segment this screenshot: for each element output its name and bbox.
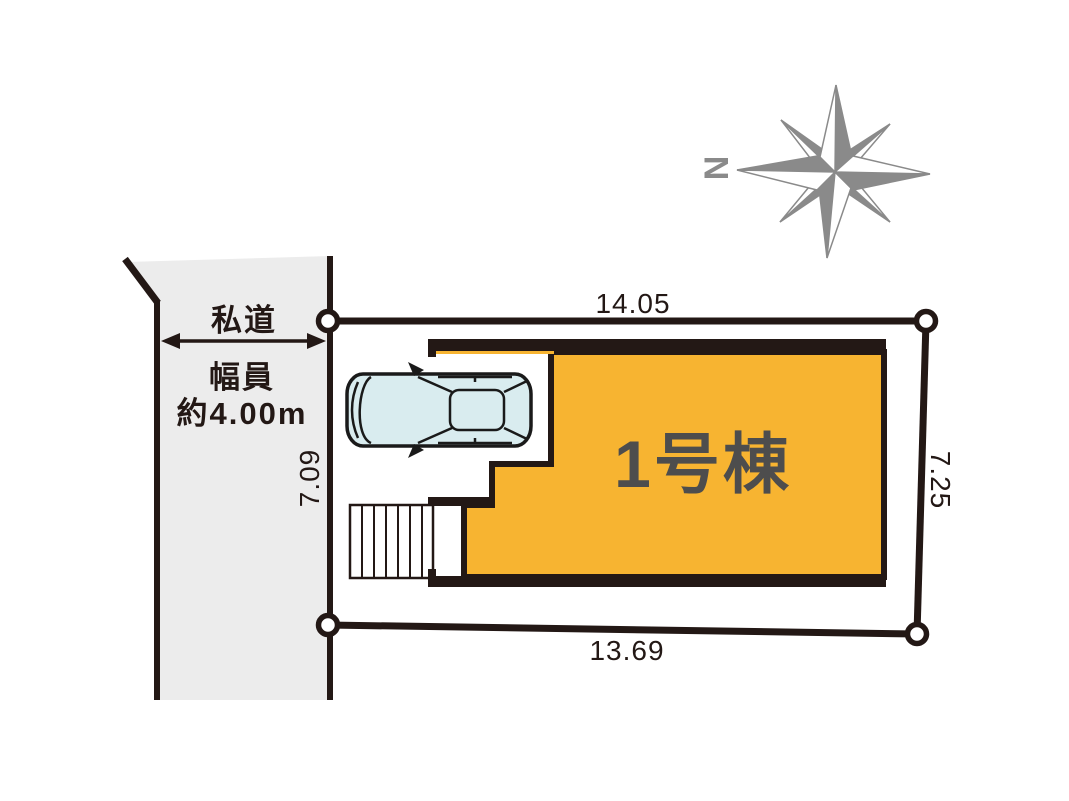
dimension-top: 14.05	[595, 288, 670, 319]
road-width-value: 約4.00m	[177, 396, 308, 431]
road-name-label: 私道	[211, 303, 277, 338]
site-plan: 私道 幅員 約4.00m 7.09 1号棟	[0, 0, 1069, 801]
road-width-label: 幅員	[209, 360, 275, 395]
entrance-steps	[350, 505, 433, 578]
lot-bottom-line	[328, 625, 917, 634]
corner-marker	[319, 312, 338, 331]
dimension-bottom: 13.69	[589, 635, 664, 666]
compass-rose: N	[698, 85, 930, 258]
dimension-right: 7.25	[925, 451, 956, 510]
road-side-dimension: 7.09	[294, 449, 325, 508]
private-road: 私道 幅員 約4.00m 7.09	[125, 256, 330, 700]
compass-cardinal-rays	[737, 85, 930, 258]
lot-right-line	[917, 321, 926, 634]
corner-marker	[908, 625, 927, 644]
porch-top-wall-line	[428, 497, 492, 506]
balcony-edge-line	[436, 351, 554, 354]
building-name-label: 1号棟	[614, 427, 792, 501]
corner-marker	[917, 312, 936, 331]
building-top-wall-endcap	[428, 339, 436, 357]
north-label: N	[698, 156, 736, 181]
building-bottom-wall-line	[428, 576, 886, 587]
building-bottom-wall-endcap	[428, 569, 436, 587]
corner-marker	[319, 616, 338, 635]
building-top-wall-line	[428, 339, 886, 351]
car-top-view	[347, 362, 531, 458]
